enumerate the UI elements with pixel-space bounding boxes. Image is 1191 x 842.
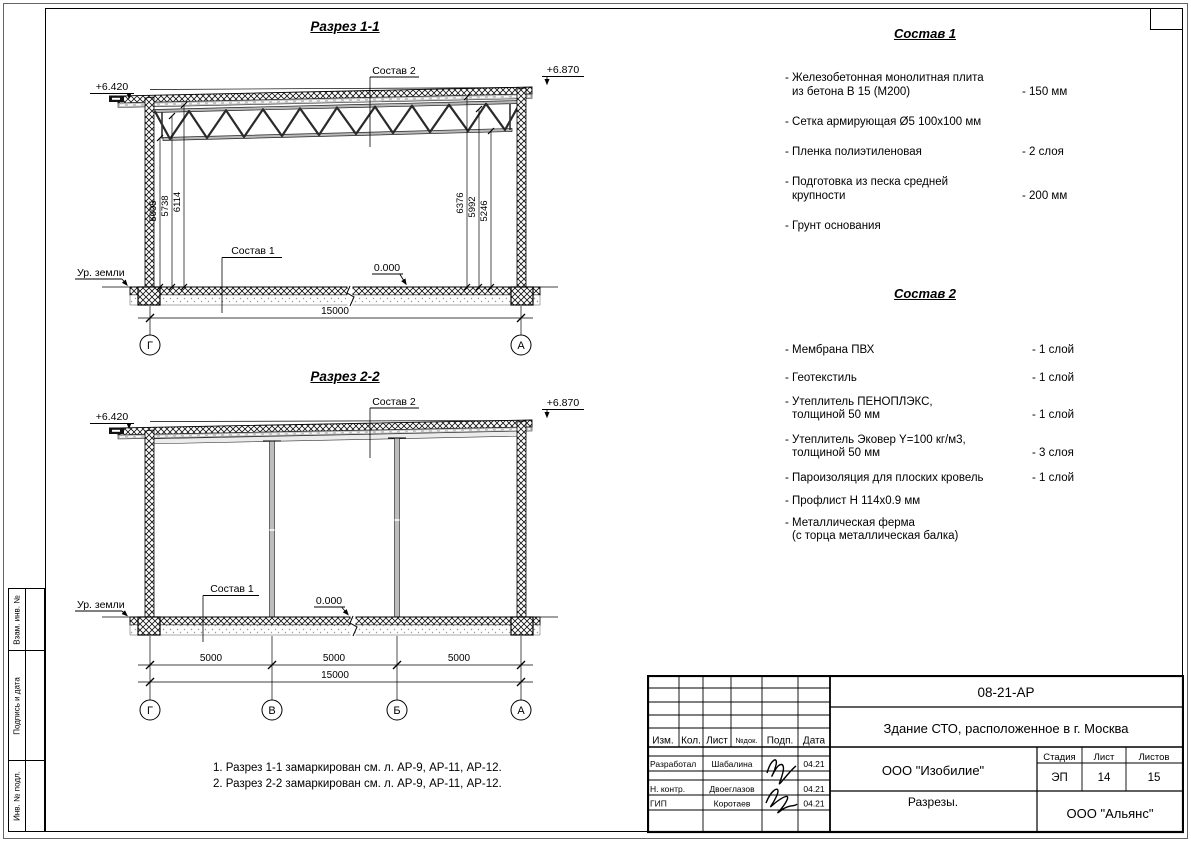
ground-label: Ур. земли: [77, 267, 125, 279]
callout-label: Состав 1: [231, 245, 275, 257]
axis-a: А: [517, 705, 525, 717]
list-item-value: - 1 слой: [1032, 472, 1074, 485]
axis-a: А: [517, 340, 525, 352]
dim-15000: 15000: [321, 670, 349, 681]
span-dimensions: 5000 5000 5000 15000: [138, 636, 533, 700]
list-item: - Железобетонная монолитная плита: [785, 72, 984, 85]
footing-right: [511, 617, 533, 635]
list-item: - Сетка армирующая Ø5 100х100 мм: [785, 116, 981, 129]
stamp-cell-inv: Инв. № подл.: [8, 760, 45, 832]
column-b: [395, 438, 400, 617]
axis-v: В: [268, 705, 275, 717]
date-developer: 04.21: [803, 759, 825, 769]
dim-span3: 5000: [448, 653, 471, 664]
dim-15000: 15000: [321, 306, 349, 317]
callout-label: Состав 2: [372, 65, 416, 77]
sheets-total: 15: [1148, 772, 1161, 784]
composition1-list: Состав 1 - Железобетонная монолитная пли…: [785, 26, 1085, 266]
dim-6114: 6114: [172, 192, 183, 212]
level-mark-6870: +6.870: [542, 397, 584, 417]
drawing-notes: 1. Разрез 1-1 замаркирован см. л. АР-9, …: [213, 760, 502, 792]
level-value: +6.870: [547, 397, 580, 409]
footing-left: [138, 287, 160, 305]
role-developer: Разработал: [650, 759, 696, 769]
stamp-label-col: Взам. инв. №: [9, 589, 26, 650]
drawing-sheet: Взам. инв. № Подпись и дата Инв. № подл.…: [0, 0, 1191, 842]
zero-level-mark: 0.000: [314, 595, 348, 615]
roof-slab: [109, 420, 532, 444]
stamp-cell-vzam: Взам. инв. №: [8, 588, 45, 651]
footing-left: [138, 617, 160, 635]
list-item: (с торца металлическая балка): [785, 530, 958, 543]
section2-drawing: +6.420 +6.870 Состав 2 Состав 1 0.000: [50, 390, 630, 730]
list-item: - Пленка полиэтиленовая: [785, 146, 922, 159]
level-mark-6870: +6.870: [542, 64, 584, 84]
list-item: - Металлическая ферма: [785, 517, 915, 530]
doc-number: 08-21-АР: [977, 685, 1034, 700]
overall-dimension: 15000: [138, 306, 533, 335]
col-list: Лист: [706, 736, 728, 747]
dim-5738: 5738: [160, 195, 171, 216]
title-block: 08-21-АР Здание СТО, расположенное в г. …: [647, 675, 1184, 834]
col-ndoc: №док.: [736, 736, 758, 745]
composition1-title: Состав 1: [785, 26, 1065, 41]
axis-g: Г: [147, 340, 153, 352]
height-dimensions-right: 6376 5992 5246: [455, 94, 494, 290]
stage-value: ЭП: [1051, 772, 1068, 784]
role-ncontrol: Н. контр.: [650, 784, 685, 794]
list-item: толщиной 50 мм: [785, 409, 880, 422]
stamp-vzam-label: Взам. инв. №: [13, 595, 22, 645]
drawing-name: Разрезы.: [908, 795, 958, 809]
floor-slab: [102, 616, 558, 636]
list-item-value: - 150 мм: [1022, 86, 1067, 99]
column-v: [270, 441, 275, 617]
list-item: - Профлист Н 114х0.9 мм: [785, 495, 920, 508]
note-line-2: 2. Разрез 2-2 замаркирован см. л. АР-9, …: [213, 776, 502, 792]
ground-label: Ур. земли: [77, 599, 125, 611]
stamp-podpis-label: Подпись и дата: [13, 677, 22, 735]
stage-label: Стадия: [1043, 752, 1075, 763]
axis-b: Б: [393, 705, 400, 717]
date-ncontrol: 04.21: [803, 784, 825, 794]
list-item: - Утеплитель Эковер Y=100 кг/м3,: [785, 434, 966, 447]
note-line-1: 1. Разрез 1-1 замаркирован см. л. АР-9, …: [213, 760, 502, 776]
walls: [145, 421, 526, 617]
section1-title: Разрез 1-1: [270, 19, 420, 34]
columns: [263, 438, 406, 617]
name-developer: Шабалина: [711, 759, 752, 769]
sheets-label: Листов: [1139, 752, 1170, 763]
contractor-company: ООО "Альянс": [1067, 806, 1154, 821]
dim-5005: 5005: [148, 200, 159, 221]
col-kol: Кол.: [681, 736, 701, 747]
zero-level-mark: 0.000: [372, 262, 406, 284]
col-izm: Изм.: [652, 736, 673, 747]
list-item-value: - 2 слоя: [1022, 146, 1064, 159]
col-data: Дата: [803, 736, 826, 747]
list-item-value: - 3 слоя: [1032, 447, 1074, 460]
list-item: крупности: [785, 190, 845, 203]
role-gip: ГИП: [650, 799, 667, 809]
stamp-label-col: Подпись и дата: [9, 651, 26, 760]
list-item: - Утеплитель ПЕНОПЛЭКС,: [785, 396, 933, 409]
name-ncontrol: Двоеглазов: [709, 784, 755, 794]
level-mark-6420: +6.420: [90, 411, 134, 428]
sheet-label: Лист: [1094, 752, 1115, 763]
level-value: +6.420: [96, 81, 129, 93]
dim-5246: 5246: [479, 200, 490, 221]
composition2-list: Состав 2 - Мембрана ПВХ - 1 слой - Геоте…: [785, 286, 1085, 556]
level-value: +6.870: [547, 64, 580, 76]
list-item: - Грунт основания: [785, 220, 881, 233]
stamp-inv-label: Инв. № подл.: [13, 771, 22, 821]
list-item: из бетона В 15 (М200): [785, 86, 910, 99]
callout-label: Состав 2: [372, 396, 416, 408]
designer-company: ООО "Изобилие": [882, 763, 985, 778]
name-gip: Коротаев: [714, 799, 751, 809]
dim-5992: 5992: [467, 196, 478, 217]
project-title: Здание СТО, расположенное в г. Москва: [884, 721, 1130, 736]
dim-span2: 5000: [323, 653, 346, 664]
steel-truss: [155, 101, 520, 141]
stamp-label-col: Инв. № подл.: [9, 761, 26, 831]
axis-bubbles: Г А: [140, 335, 531, 355]
date-gip: 04.21: [803, 799, 825, 809]
section2-title: Разрез 2-2: [270, 369, 420, 384]
sheet-number: 14: [1098, 772, 1111, 784]
axis-bubbles: Г В Б А: [140, 700, 531, 720]
list-item-value: - 1 слой: [1032, 409, 1074, 422]
axis-g: Г: [147, 705, 153, 717]
list-item: - Подготовка из песка средней: [785, 176, 948, 189]
walls: [145, 88, 526, 287]
list-item-value: - 1 слой: [1032, 344, 1074, 357]
level-value: +6.420: [96, 411, 129, 423]
section1-drawing: +6.420 +6.870 Состав 2 Состав 1 0.000: [50, 45, 630, 365]
list-item: - Пароизоляция для плоских кровель: [785, 472, 984, 485]
list-item-value: - 1 слой: [1032, 372, 1074, 385]
ground-level-mark: Ур. земли: [75, 267, 127, 285]
dim-span1: 5000: [200, 653, 223, 664]
list-item: толщиной 50 мм: [785, 447, 880, 460]
callout-label: Состав 1: [210, 583, 254, 595]
dim-6376: 6376: [455, 192, 466, 213]
level-value: 0.000: [374, 262, 400, 274]
col-podp: Подп.: [767, 736, 794, 747]
stamp-cell-podpis: Подпись и дата: [8, 650, 45, 761]
list-item-value: - 200 мм: [1022, 190, 1067, 203]
list-item: - Мембрана ПВХ: [785, 344, 874, 357]
footing-right: [511, 287, 533, 305]
ground-level-mark: Ур. земли: [75, 599, 127, 616]
composition2-title: Состав 2: [785, 286, 1065, 301]
format-cell: [1150, 8, 1183, 30]
list-item: - Геотекстиль: [785, 372, 857, 385]
level-value: 0.000: [316, 595, 342, 607]
